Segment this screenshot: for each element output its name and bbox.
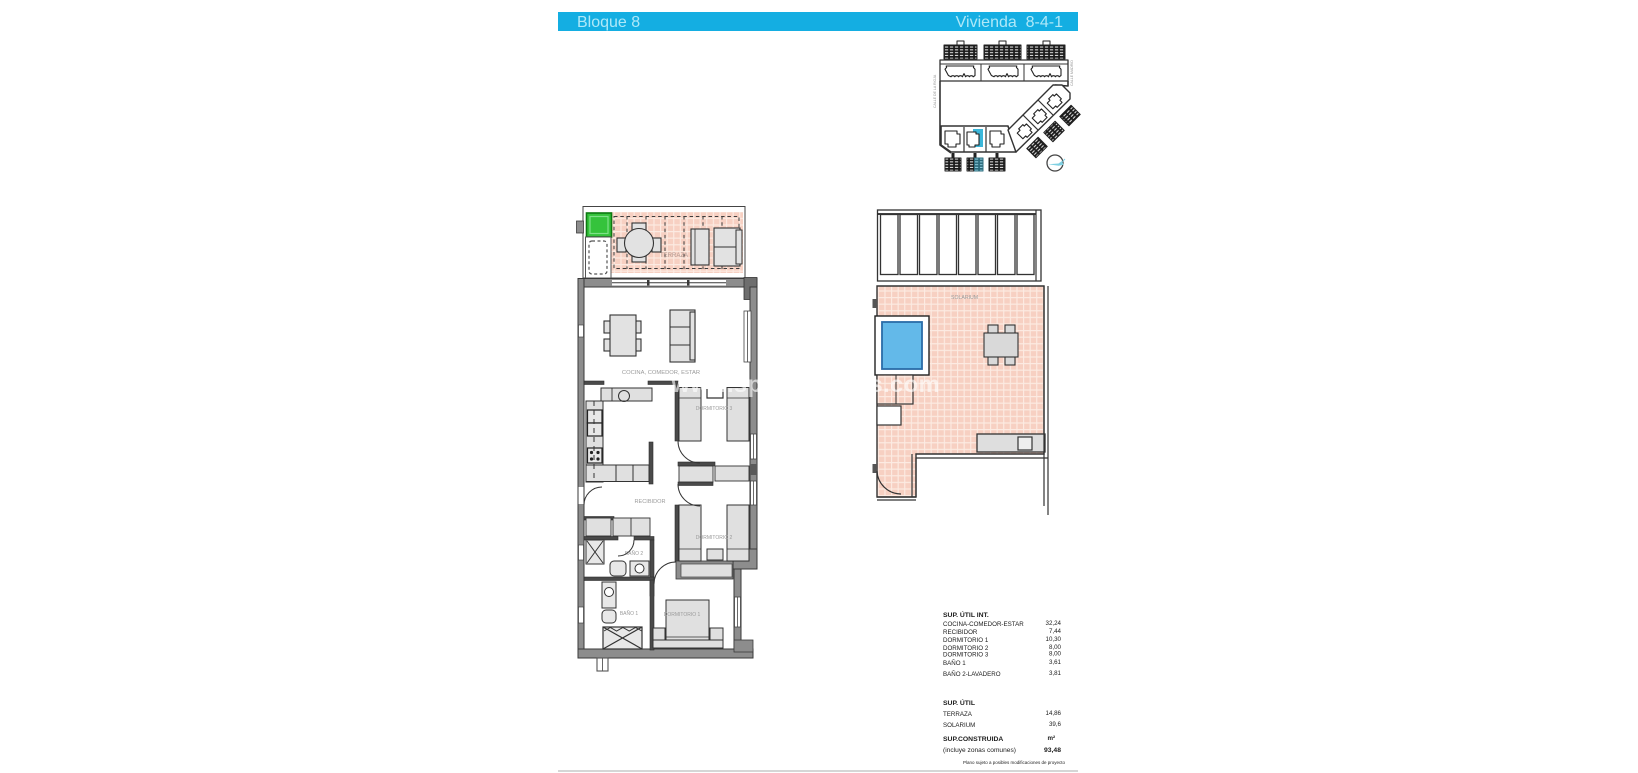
svg-text:RECIBIDOR: RECIBIDOR — [943, 629, 978, 636]
svg-text:DORMITORIO 1: DORMITORIO 1 — [664, 612, 701, 618]
svg-text:SOLARIUM: SOLARIUM — [943, 722, 975, 729]
svg-text:TERRAZA: TERRAZA — [660, 253, 688, 259]
svg-text:BAÑO 1: BAÑO 1 — [943, 660, 966, 667]
svg-text:DORMITORIO 3: DORMITORIO 3 — [696, 406, 733, 412]
svg-text:39,6: 39,6 — [1049, 721, 1062, 728]
svg-text:m²: m² — [1047, 735, 1055, 742]
svg-text:3,61: 3,61 — [1049, 659, 1062, 666]
svg-text:32,24: 32,24 — [1046, 620, 1062, 627]
svg-text:14,86: 14,86 — [1046, 710, 1062, 717]
svg-text:Vivienda 8-4-1: Vivienda 8-4-1 — [956, 14, 1063, 31]
svg-text:7,44: 7,44 — [1049, 628, 1062, 635]
svg-text:93,48: 93,48 — [1044, 747, 1061, 754]
svg-text:RECIBIDOR: RECIBIDOR — [634, 499, 665, 505]
svg-text:DORMITORIO 1: DORMITORIO 1 — [943, 637, 989, 644]
svg-text:TERRAZA: TERRAZA — [943, 711, 973, 718]
svg-text:SUP. ÚTIL: SUP. ÚTIL — [943, 698, 975, 707]
svg-text:BAÑO 2-LAVADERO: BAÑO 2-LAVADERO — [943, 671, 1001, 678]
svg-text:3,81: 3,81 — [1049, 670, 1062, 677]
svg-text:COCINA-COMEDOR-ESTAR: COCINA-COMEDOR-ESTAR — [943, 621, 1024, 628]
svg-text:SUP. ÚTIL INT.: SUP. ÚTIL INT. — [943, 610, 989, 619]
svg-text:(incluye zonas comunes): (incluye zonas comunes) — [943, 747, 1016, 754]
svg-text:10,30: 10,30 — [1046, 636, 1062, 643]
svg-text:BAÑO 1: BAÑO 1 — [620, 610, 639, 617]
svg-text:DORMITORIO 3: DORMITORIO 3 — [943, 652, 989, 659]
svg-text:CALLE MADRID: CALLE MADRID — [1070, 60, 1074, 86]
svg-text:Plano sujeto a posibles modifi: Plano sujeto a posibles modificaciones d… — [963, 760, 1066, 765]
svg-text:8,00: 8,00 — [1049, 651, 1062, 658]
svg-text:www.spainhouses.com: www.spainhouses.com — [671, 371, 941, 397]
svg-text:SUP.CONSTRUIDA: SUP.CONSTRUIDA — [943, 736, 1003, 743]
svg-text:DORMITORIO 2: DORMITORIO 2 — [696, 535, 733, 541]
svg-text:Bloque 8: Bloque 8 — [577, 14, 640, 31]
svg-text:BAÑO 2: BAÑO 2 — [625, 550, 644, 557]
svg-text:CALLE DE LA RIOJA: CALLE DE LA RIOJA — [933, 74, 937, 108]
svg-text:SOLARIUM: SOLARIUM — [951, 295, 978, 301]
